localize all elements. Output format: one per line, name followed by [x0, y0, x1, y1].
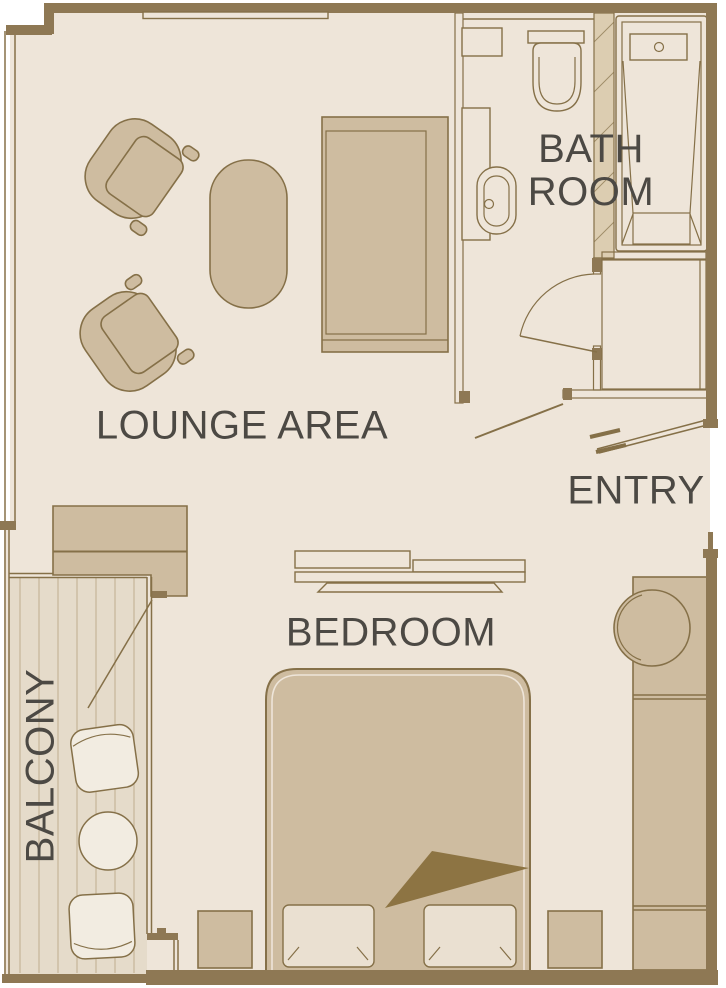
right-wall-upper	[706, 3, 717, 427]
balcony-table	[79, 812, 137, 870]
coffee-table	[210, 160, 287, 308]
stool	[614, 590, 690, 666]
room-label-lounge-area: LOUNGE AREA	[96, 404, 388, 447]
room-label-entry: ENTRY	[567, 469, 704, 512]
pillow-right	[424, 905, 516, 967]
top-left-notch	[0, 0, 44, 25]
floor-plan: LOUNGE AREA BATH ROOM ENTRY BEDROOM BALC…	[0, 0, 726, 988]
balcony-chair-1	[69, 723, 140, 794]
bathroom-shelf	[462, 28, 502, 56]
balcony-bottom-wall	[2, 974, 148, 983]
nightstand-right	[548, 911, 602, 968]
right-wall-lower	[706, 549, 717, 985]
pillow-left	[283, 905, 374, 967]
nightstand-left	[198, 911, 252, 968]
room-label-bathroom: BATH ROOM	[528, 128, 654, 214]
balcony-chair-2	[68, 892, 135, 959]
room-label-bedroom: BEDROOM	[286, 611, 496, 654]
top-window-strip	[143, 12, 328, 19]
room-label-balcony: BALCONY	[19, 669, 62, 864]
bottom-wall	[146, 970, 718, 985]
room-label-bathroom-line2: ROOM	[528, 171, 654, 214]
double-bed	[266, 669, 530, 974]
bathtub-faucet	[630, 34, 687, 60]
wall-jut	[147, 933, 178, 940]
room-label-bathroom-line1: BATH	[528, 128, 654, 171]
sofa	[322, 117, 448, 352]
toilet	[528, 31, 584, 111]
